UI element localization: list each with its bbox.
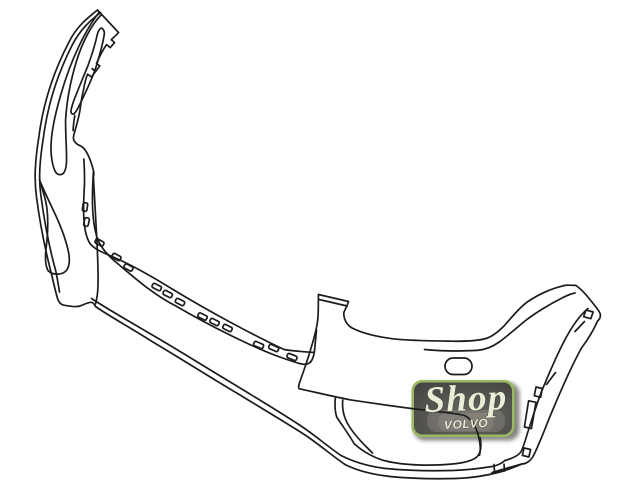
svg-text:Shop: Shop (424, 377, 508, 421)
svg-text:VOLVO: VOLVO (444, 416, 489, 432)
